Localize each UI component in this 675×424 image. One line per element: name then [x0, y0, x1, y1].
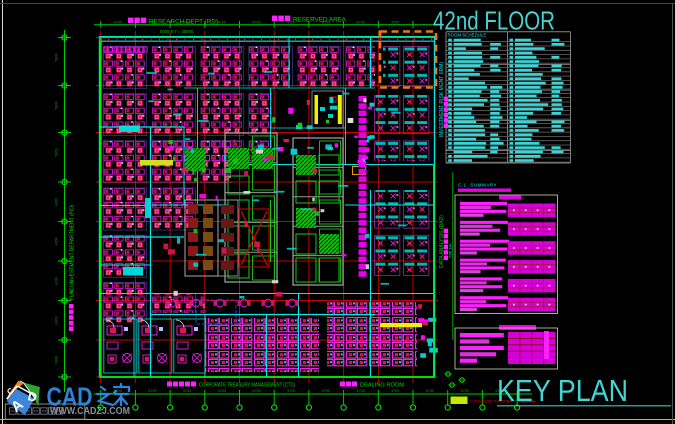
svg-text:4700: 4700	[322, 389, 330, 393]
svg-text:4700: 4700	[356, 389, 364, 393]
svg-text:4700: 4700	[391, 389, 399, 393]
svg-text:4200: 4200	[55, 198, 59, 206]
svg-text:3900: 3900	[55, 356, 59, 364]
svg-text:4700: 4700	[183, 389, 191, 393]
svg-text:4700: 4700	[252, 389, 260, 393]
svg-text:RESEARCH DEPT (RD): RESEARCH DEPT (RD)	[149, 19, 218, 25]
svg-text:4700: 4700	[356, 20, 364, 24]
svg-text:4700: 4700	[287, 389, 295, 393]
svg-text:KEY PLAN: KEY PLAN	[497, 373, 628, 408]
svg-text:4700: 4700	[148, 389, 156, 393]
svg-text:FUND INVESTMENT DEPARTMENT: FUND INVESTMENT DEPARTMENT (FID)	[70, 204, 76, 300]
svg-text:4200: 4200	[55, 238, 59, 246]
svg-text:4700: 4700	[218, 20, 226, 24]
svg-text:C.L. SUMMARY: C.L. SUMMARY	[458, 183, 497, 188]
svg-text:5000 X 7 = 35000: 5000 X 7 = 35000	[160, 29, 194, 34]
svg-text:4700: 4700	[391, 20, 399, 24]
svg-text:4700: 4700	[460, 389, 468, 393]
svg-text:5000: 5000	[55, 102, 59, 110]
svg-text:4700: 4700	[113, 20, 121, 24]
svg-text:RESERVED AREA: RESERVED AREA	[293, 17, 346, 23]
svg-text:DEALING ROOM: DEALING ROOM	[360, 383, 405, 389]
svg-text:CORPORATE TREASURY MANAGEMEN: CORPORATE TREASURY MANAGEMENT (CTD)	[199, 383, 295, 389]
svg-text:4700: 4700	[252, 20, 260, 24]
svg-text:4200: 4200	[55, 317, 59, 325]
svg-text:WWW.CADZJ.COM: WWW.CADZJ.COM	[50, 406, 130, 417]
svg-text:4200: 4200	[55, 277, 59, 285]
svg-text:42nd FLOOR: 42nd FLOOR	[433, 5, 555, 35]
svg-text:5000: 5000	[55, 54, 59, 62]
svg-text:TYP. 14F: TYP. 14F	[449, 242, 453, 258]
svg-text:5200: 5200	[55, 149, 59, 157]
svg-text:4700: 4700	[426, 389, 434, 393]
svg-text:4700: 4700	[218, 389, 226, 393]
